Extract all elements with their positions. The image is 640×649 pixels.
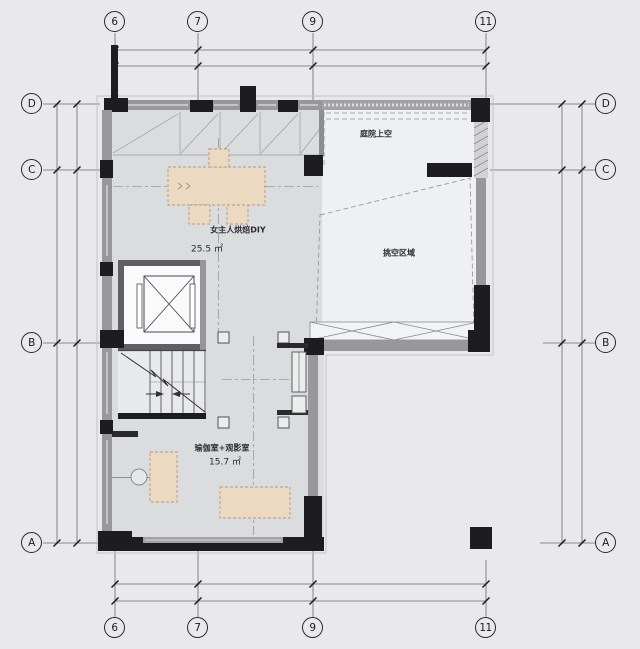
void-bottom-truss: [310, 322, 478, 351]
isolated-column: [470, 527, 492, 549]
grid-bubble-right-A: A: [595, 532, 616, 553]
grid-bubble-right-C: C: [595, 159, 616, 180]
staircase: [118, 350, 206, 419]
grid-bubble-top-11: 11: [475, 11, 496, 32]
room-label-void: 挑空区域: [383, 248, 415, 259]
yoga-wall-stub: [112, 431, 138, 437]
sliding-door-panels: [292, 352, 306, 413]
grid-bubble-left-A: A: [21, 532, 42, 553]
grid-bubble-bottom-6: 6: [104, 617, 125, 638]
room-area-yoga: 15.7 ㎡: [209, 455, 241, 468]
room-label-terrace: 庭院上空: [360, 129, 392, 140]
stool: [131, 469, 147, 485]
open-floor-terrace-void: [322, 108, 476, 342]
grid-bubble-bottom-11: 11: [475, 617, 496, 638]
room-area-baking: 25.5 ㎡: [191, 242, 223, 255]
floor-plan-drawing: [0, 0, 640, 649]
room-label-yoga: 瑜伽室+观影室: [195, 443, 250, 454]
floor-plan-canvas: 6 7 9 11 6 7 9 11 D C B A D C B A 庭院上空 女…: [0, 0, 640, 649]
grid-bubble-bottom-9: 9: [302, 617, 323, 638]
top-wall: [104, 45, 471, 112]
grid-bubble-right-B: B: [595, 332, 616, 353]
grid-bubble-left-B: B: [21, 332, 42, 353]
grid-bubble-left-D: D: [21, 93, 42, 114]
grid-bubble-top-6: 6: [104, 11, 125, 32]
grid-bubble-left-C: C: [21, 159, 42, 180]
grid-bubble-right-D: D: [595, 93, 616, 114]
room-label-baking: 女主人烘焙DIY: [210, 225, 265, 236]
grid-bubble-top-7: 7: [187, 11, 208, 32]
elevator: [118, 260, 206, 350]
grid-bubble-top-9: 9: [302, 11, 323, 32]
grid-bubble-bottom-7: 7: [187, 617, 208, 638]
